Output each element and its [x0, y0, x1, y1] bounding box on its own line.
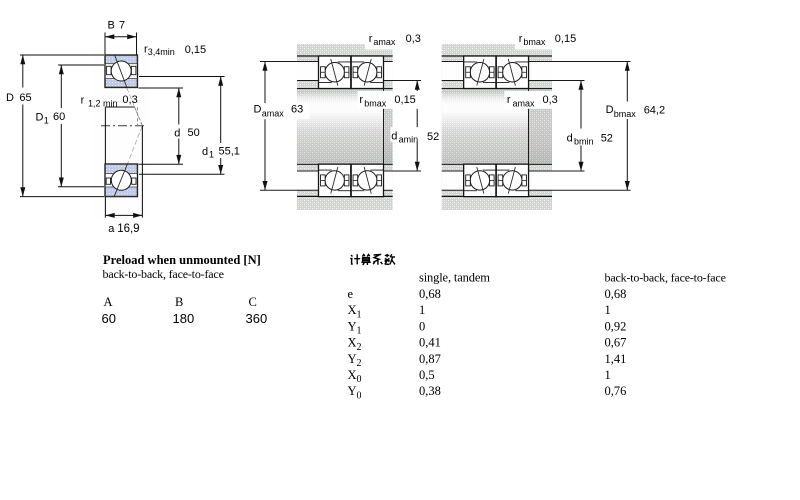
svg-text:0,87: 0,87 [419, 352, 441, 366]
svg-text:Y: Y [348, 319, 357, 333]
svg-text:65: 65 [19, 92, 31, 104]
svg-text:amax: amax [373, 37, 396, 47]
svg-text:bmax: bmax [364, 98, 387, 108]
svg-text:50: 50 [188, 127, 200, 139]
svg-text:0,68: 0,68 [419, 287, 441, 301]
svg-text:360: 360 [246, 311, 268, 326]
svg-text:1,41: 1,41 [605, 352, 627, 366]
svg-text:0,15: 0,15 [394, 94, 415, 106]
svg-text:bmax: bmax [614, 109, 637, 119]
svg-text:2: 2 [357, 342, 362, 353]
svg-text:C: C [249, 295, 257, 309]
svg-text:amax: amax [513, 98, 536, 108]
svg-text:2: 2 [357, 358, 362, 369]
svg-text:r: r [507, 94, 511, 106]
svg-text:r: r [369, 33, 373, 45]
svg-text:7: 7 [119, 20, 125, 32]
svg-text:X: X [348, 368, 357, 382]
svg-text:0,76: 0,76 [605, 384, 627, 398]
svg-text:0,3: 0,3 [122, 94, 137, 106]
svg-text:180: 180 [173, 311, 195, 326]
svg-text:bmin: bmin [574, 136, 594, 146]
svg-text:55,1: 55,1 [219, 145, 240, 157]
svg-text:d: d [174, 128, 180, 140]
svg-text:0: 0 [419, 319, 425, 333]
svg-text:amax: amax [262, 108, 285, 118]
svg-text:amin: amin [399, 134, 419, 144]
svg-text:1: 1 [357, 309, 362, 320]
svg-text:D: D [606, 104, 614, 116]
svg-text:60: 60 [53, 111, 65, 123]
svg-text:0: 0 [357, 390, 362, 401]
svg-text:d: d [567, 133, 573, 145]
svg-text:52: 52 [427, 131, 439, 143]
svg-text:a: a [108, 223, 115, 235]
svg-text:64,2: 64,2 [644, 105, 665, 117]
svg-text:D: D [6, 92, 14, 104]
svg-text:r: r [359, 94, 363, 106]
svg-text:Y: Y [348, 384, 357, 398]
svg-text:single, tandem: single, tandem [419, 270, 490, 284]
svg-text:D: D [254, 104, 262, 116]
svg-text:0,3: 0,3 [543, 94, 558, 106]
svg-text:0,67: 0,67 [605, 336, 627, 350]
svg-text:1: 1 [357, 326, 362, 337]
svg-text:Y: Y [348, 352, 357, 366]
svg-text:0,15: 0,15 [185, 44, 206, 56]
svg-text:63: 63 [291, 104, 303, 116]
svg-text:A: A [104, 295, 113, 309]
svg-text:0,5: 0,5 [419, 368, 435, 382]
svg-text:0,3: 0,3 [406, 33, 421, 45]
svg-text:1: 1 [605, 368, 611, 382]
svg-text:X: X [348, 303, 357, 317]
svg-text:0,68: 0,68 [605, 287, 627, 301]
svg-text:bmax: bmax [523, 37, 546, 47]
svg-text:D: D [36, 112, 44, 124]
svg-text:back-to-back, face-to-face: back-to-back, face-to-face [103, 267, 224, 281]
svg-text:0,41: 0,41 [419, 336, 441, 350]
svg-text:X: X [348, 336, 357, 350]
svg-text:1: 1 [605, 303, 611, 317]
svg-text:0,92: 0,92 [605, 319, 627, 333]
svg-text:r: r [519, 33, 523, 45]
svg-text:3,4min: 3,4min [148, 47, 175, 57]
svg-text:16,9: 16,9 [117, 223, 139, 235]
svg-text:1: 1 [44, 115, 49, 125]
svg-text:e: e [348, 287, 354, 301]
svg-text:60: 60 [102, 311, 116, 326]
svg-text:back-to-back, face-to-face: back-to-back, face-to-face [605, 270, 726, 284]
svg-text:0,38: 0,38 [419, 384, 441, 398]
svg-text:1,2 min: 1,2 min [88, 98, 118, 108]
svg-text:52: 52 [601, 132, 613, 144]
svg-text:d: d [202, 146, 208, 158]
svg-text:Preload when unmounted [N]: Preload when unmounted [N] [103, 253, 261, 267]
svg-text:1: 1 [209, 150, 214, 160]
svg-text:r: r [81, 95, 85, 107]
svg-text:d: d [391, 131, 397, 143]
svg-text:1: 1 [419, 303, 425, 317]
svg-text:B: B [175, 295, 183, 309]
svg-text:0,15: 0,15 [555, 33, 576, 45]
svg-text:B: B [108, 20, 115, 32]
svg-text:0: 0 [357, 374, 362, 385]
